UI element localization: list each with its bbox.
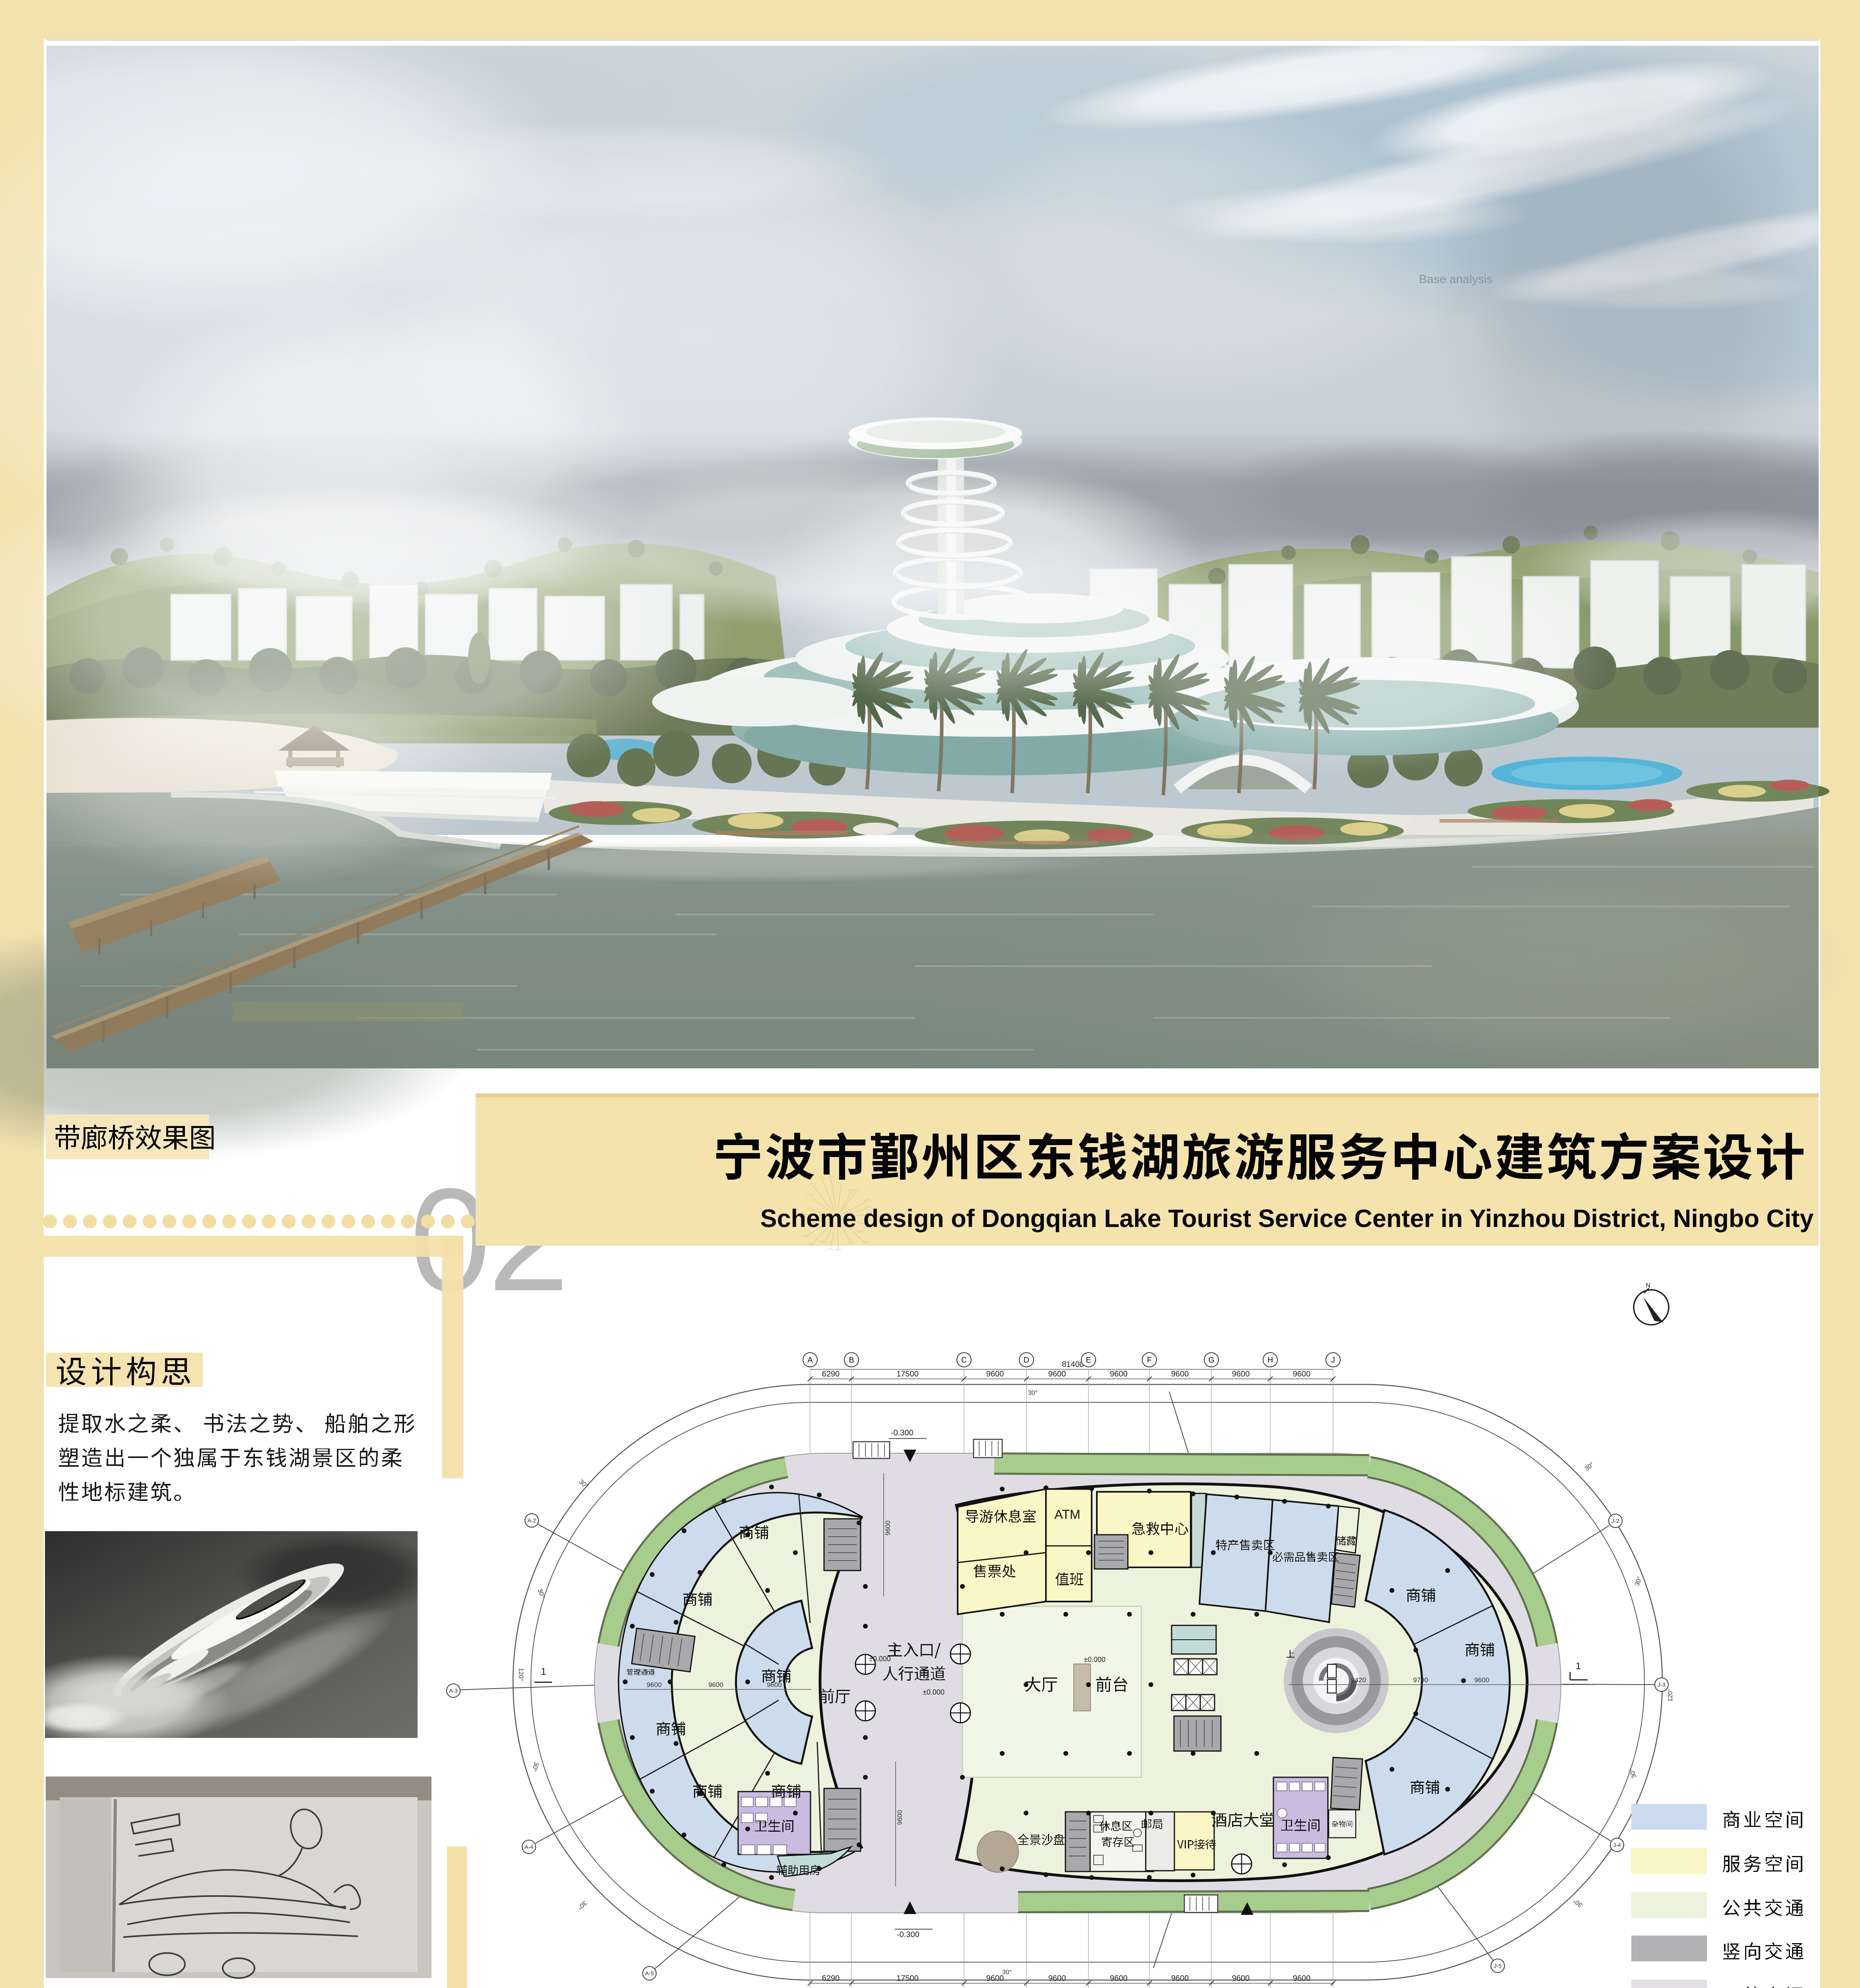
svg-text:30°: 30° bbox=[1028, 1390, 1038, 1396]
svg-text:A-5: A-5 bbox=[645, 1970, 654, 1976]
svg-text:J-3: J-3 bbox=[1658, 1681, 1666, 1688]
svg-text:9600: 9600 bbox=[1171, 1974, 1189, 1983]
svg-text:A-3: A-3 bbox=[449, 1687, 458, 1694]
svg-text:D: D bbox=[1024, 1356, 1029, 1365]
svg-text:C: C bbox=[961, 1356, 967, 1365]
svg-text:-0.300: -0.300 bbox=[897, 1930, 919, 1939]
svg-text:G: G bbox=[1208, 1356, 1215, 1365]
svg-text:9600: 9600 bbox=[1474, 1676, 1489, 1684]
svg-text:9600: 9600 bbox=[884, 1520, 892, 1536]
svg-text:17500: 17500 bbox=[896, 1974, 919, 1983]
svg-text:9600: 9600 bbox=[1232, 1974, 1250, 1983]
svg-text:Base analysis: Base analysis bbox=[1419, 273, 1493, 286]
svg-text:J-4: J-4 bbox=[1613, 1842, 1621, 1848]
svg-text:9600: 9600 bbox=[1293, 1974, 1311, 1983]
svg-text:9600: 9600 bbox=[1110, 1974, 1128, 1983]
svg-text:9600: 9600 bbox=[1293, 1370, 1311, 1378]
svg-text:H: H bbox=[1267, 1356, 1273, 1365]
svg-text:Scheme design of Dongqian Lake: Scheme design of Dongqian Lake Tourist S… bbox=[760, 1205, 1814, 1233]
svg-text:81400: 81400 bbox=[1062, 1360, 1084, 1369]
svg-text:J-2: J-2 bbox=[1611, 1518, 1619, 1524]
svg-text:F: F bbox=[1147, 1356, 1152, 1365]
svg-text:B: B bbox=[849, 1356, 854, 1365]
svg-text:9600: 9600 bbox=[896, 1810, 904, 1825]
svg-text:E: E bbox=[1086, 1356, 1091, 1365]
svg-text:9600: 9600 bbox=[986, 1974, 1004, 1983]
svg-text:9600: 9600 bbox=[1232, 1370, 1250, 1378]
svg-text:120°: 120° bbox=[1667, 1689, 1674, 1702]
svg-text:9600: 9600 bbox=[1048, 1370, 1066, 1378]
svg-text:6290: 6290 bbox=[822, 1974, 840, 1983]
svg-text:A-4: A-4 bbox=[525, 1844, 533, 1850]
svg-text:N: N bbox=[1646, 1282, 1650, 1289]
svg-text:±0.000: ±0.000 bbox=[869, 1655, 891, 1663]
svg-text:9600: 9600 bbox=[1048, 1974, 1066, 1983]
svg-text:A: A bbox=[807, 1356, 813, 1365]
svg-text:9790: 9790 bbox=[1413, 1676, 1428, 1684]
svg-text:±0.000: ±0.000 bbox=[1084, 1656, 1106, 1664]
svg-text:J: J bbox=[1331, 1356, 1335, 1365]
svg-text:17500: 17500 bbox=[896, 1370, 919, 1378]
svg-text:1: 1 bbox=[1576, 1661, 1581, 1672]
svg-text:9600: 9600 bbox=[708, 1681, 723, 1689]
svg-text:1: 1 bbox=[541, 1666, 546, 1677]
svg-text:120°: 120° bbox=[517, 1668, 524, 1681]
svg-text:-0.300: -0.300 bbox=[891, 1429, 913, 1437]
svg-text:9600: 9600 bbox=[986, 1370, 1004, 1378]
svg-text:±0.000: ±0.000 bbox=[923, 1688, 945, 1696]
svg-text:J-5: J-5 bbox=[1494, 1963, 1502, 1969]
svg-text:A-2: A-2 bbox=[527, 1517, 536, 1524]
svg-text:9600: 9600 bbox=[1171, 1370, 1189, 1378]
svg-text:9600: 9600 bbox=[647, 1681, 662, 1689]
svg-text:9600: 9600 bbox=[1110, 1370, 1128, 1378]
svg-text:ATM: ATM bbox=[1054, 1507, 1080, 1522]
svg-text:9420: 9420 bbox=[1351, 1676, 1366, 1684]
svg-text:6290: 6290 bbox=[822, 1370, 840, 1378]
